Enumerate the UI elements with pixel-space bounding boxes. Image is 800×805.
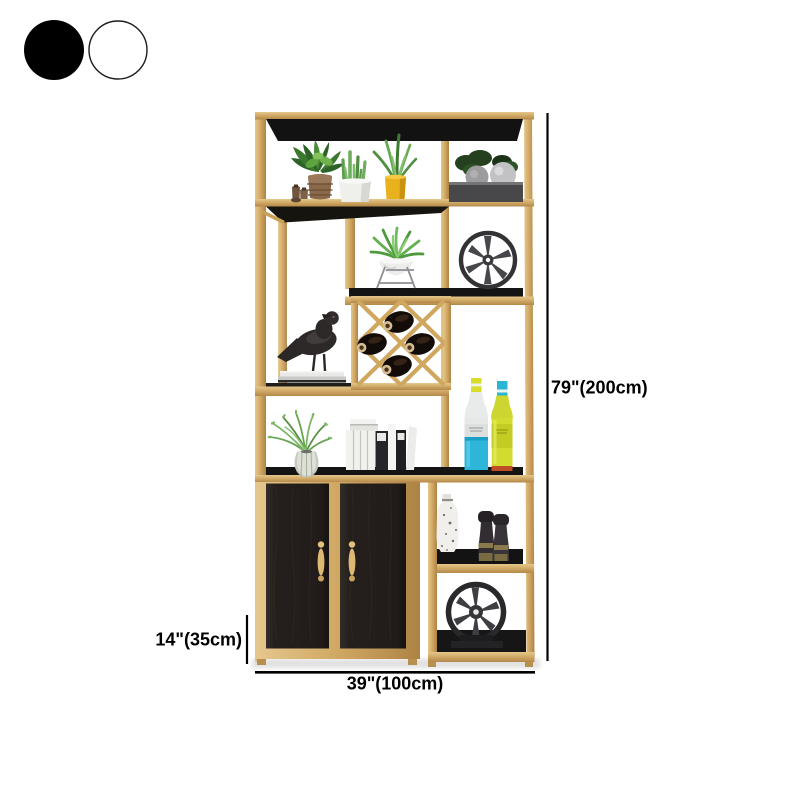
- svg-text:79"(200cm): 79"(200cm): [551, 378, 648, 398]
- svg-text:39"(100cm): 39"(100cm): [347, 674, 444, 694]
- svg-text:14"(35cm): 14"(35cm): [155, 630, 242, 650]
